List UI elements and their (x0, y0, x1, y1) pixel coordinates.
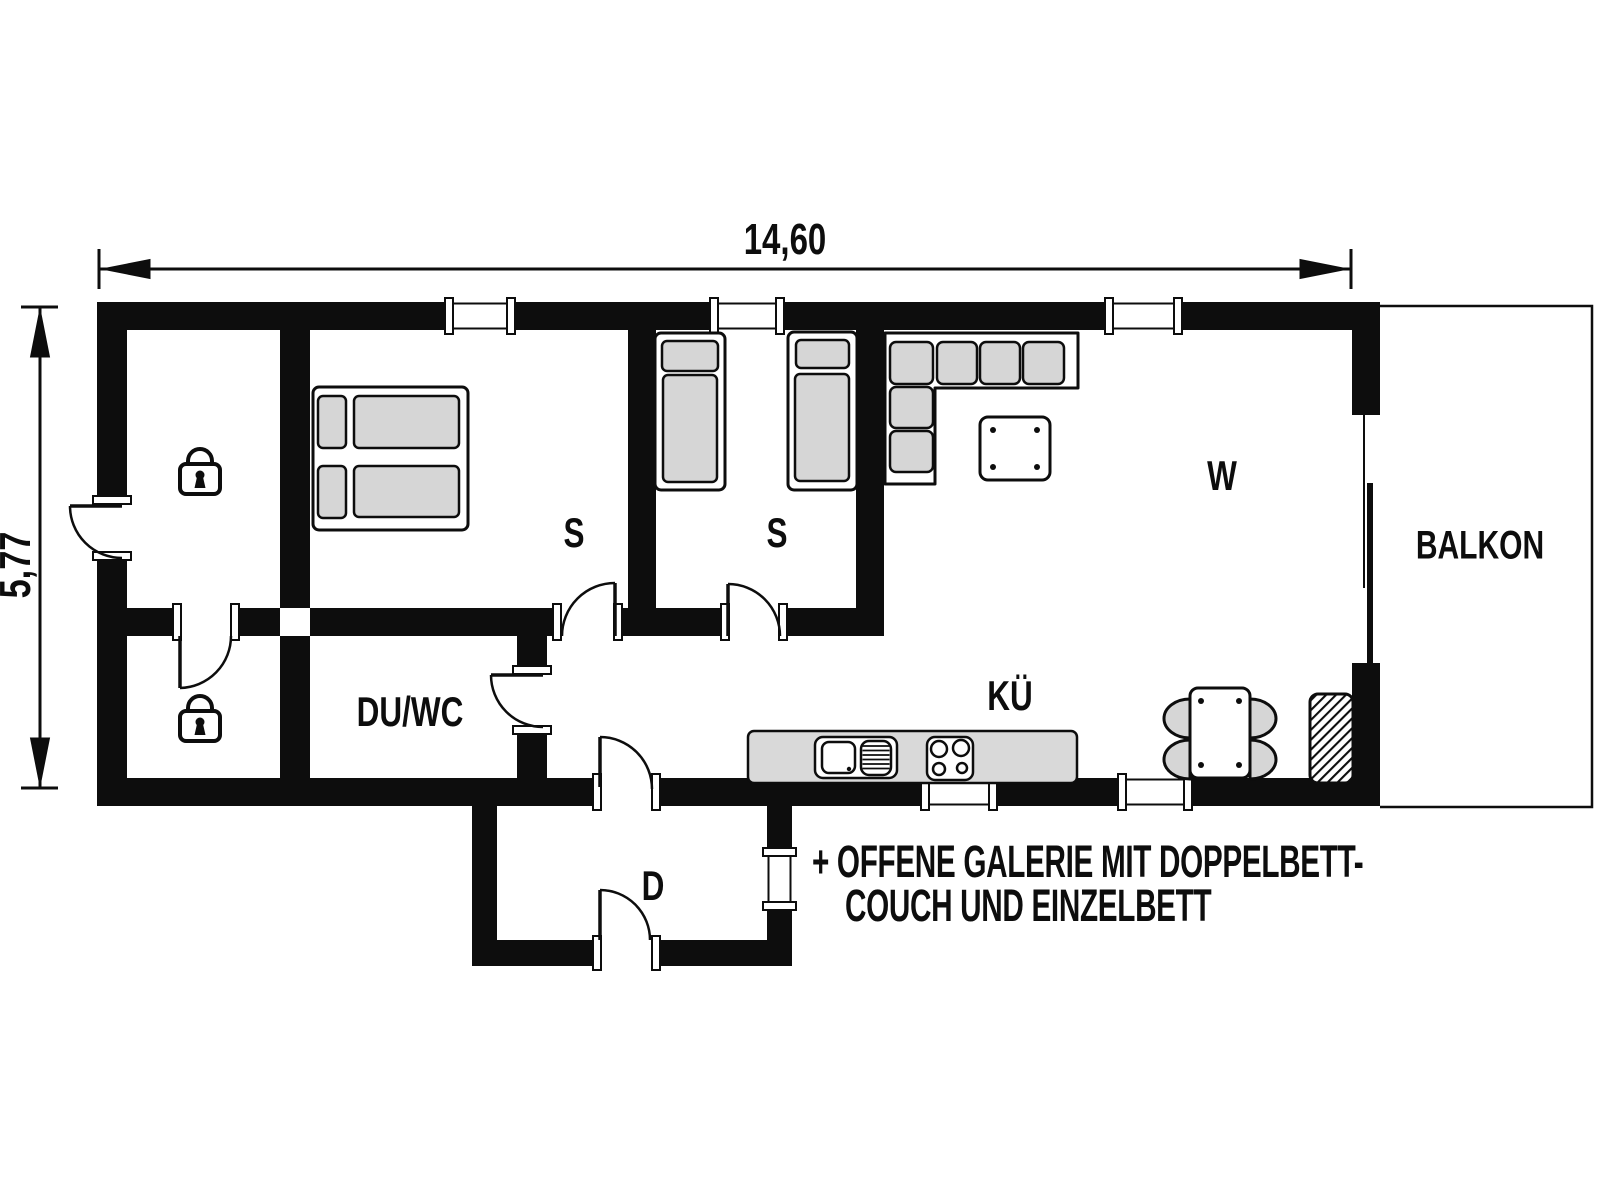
wall-right-pier-bottom (1352, 663, 1380, 806)
lock-icon (180, 696, 220, 741)
floor-plan-drawing (0, 0, 1600, 1200)
storage-door (180, 636, 231, 688)
room-label-bedroom2: S (766, 509, 787, 557)
dimension-width-label: 14,60 (744, 215, 827, 265)
dining-set (1164, 688, 1276, 779)
room-label-living: W (1207, 452, 1237, 500)
chair (1250, 699, 1276, 738)
floor-plan-canvas: 14,60 5,77 S S W KÜ DU/WC D BALKON + OFF… (0, 0, 1600, 1200)
chair (1250, 740, 1276, 779)
lock-icon (180, 449, 220, 494)
chair (1164, 699, 1190, 738)
single-bed-1 (655, 333, 725, 490)
wall-bedroom2-right (856, 330, 884, 608)
room-label-kitchen: KÜ (987, 672, 1033, 720)
sliding-door (1364, 415, 1370, 663)
wall-right-pier-top (1352, 330, 1380, 415)
double-bed (313, 387, 468, 530)
kitchen-counter (748, 731, 1077, 783)
fireplace (1310, 694, 1353, 783)
gallery-note-line2: COUCH UND EINZELBETT (845, 880, 1211, 932)
wall-storage2-right (280, 636, 310, 778)
dimension-height-label: 5,77 (0, 532, 41, 599)
chair (1164, 740, 1190, 779)
sink (815, 737, 897, 778)
wall-storage-right (280, 330, 310, 608)
coffee-table (980, 417, 1050, 480)
room-label-balcony: BALKON (1416, 524, 1544, 569)
room-label-bath: DU/WC (357, 688, 464, 736)
stove (927, 737, 973, 780)
room-label-bedroom1: S (563, 509, 584, 557)
single-bed-2 (788, 332, 857, 490)
room-label-hall: D (642, 862, 665, 910)
wall-bedroom-divider (628, 330, 656, 608)
dimension-line-top (99, 249, 1351, 289)
